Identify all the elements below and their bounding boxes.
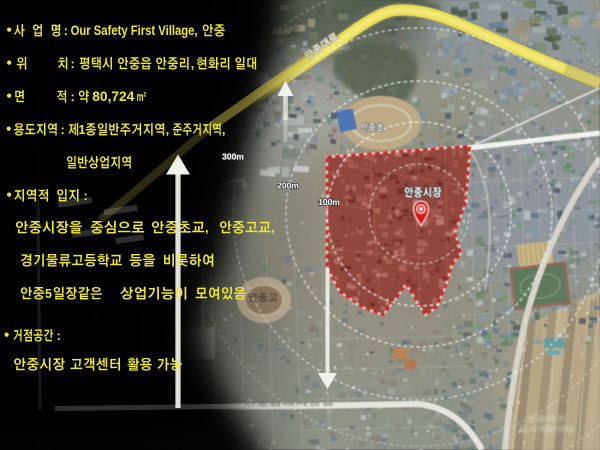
svg-text::: : bbox=[71, 56, 75, 71]
svg-text:,: , bbox=[222, 122, 226, 137]
svg-text:,: , bbox=[271, 220, 275, 235]
svg-text:,: , bbox=[166, 122, 170, 137]
svg-text:80,724: 80,724 bbox=[92, 89, 134, 104]
svg-text:300m: 300m bbox=[222, 152, 244, 162]
svg-text:200m: 200m bbox=[277, 181, 299, 191]
svg-text:Our Safety First Village,: Our Safety First Village, bbox=[71, 23, 198, 38]
svg-text:,: , bbox=[191, 56, 195, 71]
svg-text:,: , bbox=[205, 220, 209, 235]
svg-text:100m: 100m bbox=[318, 197, 340, 207]
svg-text:m²: m² bbox=[137, 89, 147, 104]
svg-text:1: 1 bbox=[79, 123, 86, 137]
svg-text::: : bbox=[71, 89, 75, 104]
svg-text::: : bbox=[57, 328, 61, 343]
svg-text:5: 5 bbox=[45, 287, 52, 301]
svg-text::: : bbox=[61, 122, 65, 137]
svg-text::: : bbox=[64, 23, 68, 38]
svg-text::: : bbox=[84, 188, 88, 203]
